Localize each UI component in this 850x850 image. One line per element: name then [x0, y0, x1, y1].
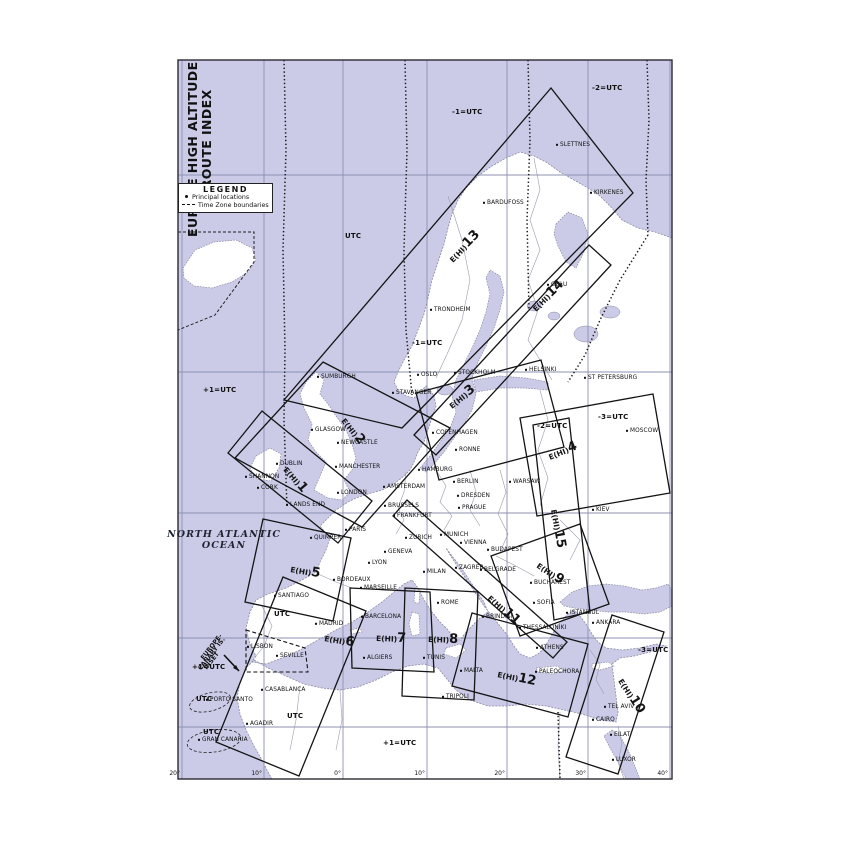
city-label-BRINDISI: BRINDISI — [486, 614, 513, 620]
city-dot-THESSALONIKI — [519, 627, 521, 629]
city-dot-BARCELONA — [361, 616, 363, 618]
city-label-LISBON: LISBON — [251, 644, 273, 650]
city-dot-SUMBURGH — [317, 376, 319, 378]
city-label-SOFIA: SOFIA — [537, 600, 555, 606]
city-label-GLASGOW: GLASGOW — [315, 427, 346, 433]
city-dot-BELGRADE — [480, 569, 482, 571]
city-dot-PRAGUE — [458, 507, 460, 509]
city-dot-BORDEAUX — [333, 579, 335, 581]
city-dot-ST PETERSBURG — [584, 377, 586, 379]
city-label-TEL AVIV: TEL AVIV — [607, 704, 634, 710]
ocean-label-line2: OCEAN — [202, 540, 246, 551]
city-dot-ZURICH — [405, 537, 407, 539]
city-dot-MARSEILLE — [360, 587, 362, 589]
city-dot-ALGIERS — [363, 657, 365, 659]
city-dot-CASABLANCA — [261, 689, 263, 691]
city-dot-SHANNON — [245, 476, 247, 478]
city-label-TRONDHEIM: TRONDHEIM — [433, 307, 471, 313]
city-dot-SLETTNES — [556, 144, 558, 146]
city-dot-MADRID — [315, 623, 317, 625]
utc-zone-label-0: -1=UTC — [452, 108, 482, 116]
lake-1 — [574, 326, 598, 342]
utc-zone-label-1: -2=UTC — [592, 84, 622, 92]
city-label-BORDEAUX: BORDEAUX — [337, 577, 371, 583]
city-label-KIRKENES: KIRKENES — [594, 190, 624, 196]
city-dot-HAMBURG — [418, 469, 420, 471]
city-dot-CAIRO — [592, 719, 594, 721]
longitude-label-6: 40° — [657, 770, 668, 777]
utc-zone-label-3: +1=UTC — [203, 386, 236, 394]
city-label-CORK: CORK — [261, 485, 278, 491]
lake-2 — [600, 306, 620, 318]
city-dot-LYON — [368, 562, 370, 564]
city-dot-LISBON — [247, 646, 249, 648]
time-zone-dashed-line-icon — [182, 204, 195, 205]
city-label-STAVANGER: STAVANGER — [396, 390, 431, 396]
city-dot-KIRKENES — [590, 192, 592, 194]
city-dot-MALTA — [460, 670, 462, 672]
city-label-PARIS: PARIS — [349, 527, 366, 533]
city-label-MADRID: MADRID — [319, 621, 344, 627]
legend-item-principal-locations: Principal locations — [182, 194, 269, 202]
ocean-label-line1: NORTH ATLANTIC — [166, 529, 281, 540]
city-label-OULU: OULU — [551, 282, 567, 288]
longitude-label-1: 10° — [251, 770, 262, 777]
utc-zone-label-7: -3=UTC — [638, 646, 668, 654]
city-label-LUXOR: LUXOR — [616, 757, 636, 763]
island-3 — [414, 588, 420, 604]
city-dot-BUDAPEST — [487, 549, 489, 551]
city-label-HAMBURG: HAMBURG — [422, 467, 453, 473]
city-label-MILAN: MILAN — [427, 569, 446, 575]
city-label-PRAGUE: PRAGUE — [462, 505, 486, 511]
city-label-BRUSSELS: BRUSSELS — [388, 503, 419, 509]
city-label-BARDUFOSS: BARDUFOSS — [487, 200, 524, 206]
city-label-BARCELONA: BARCELONA — [365, 614, 401, 620]
city-dot-SOFIA — [533, 602, 535, 604]
city-label-PALEOCHORA: PALEOCHORA — [539, 669, 579, 675]
city-label-ATHENS: ATHENS — [540, 645, 564, 651]
city-label-ZAGREB: ZAGREB — [459, 565, 484, 571]
legend-item-label: Principal locations — [192, 194, 249, 201]
city-dot-QUIMPER — [310, 537, 312, 539]
city-dot-TUNIS — [423, 657, 425, 659]
city-dot-BUCHAREST — [530, 582, 532, 584]
chart-index-page: { "title":{"line1":"EUROPE HIGH ALTITUDE… — [0, 0, 850, 850]
city-dot-TEL AVIV — [604, 706, 606, 708]
utc-zone-label-11: UTC — [203, 728, 219, 736]
city-dot-OULU — [547, 284, 549, 286]
city-label-ALGIERS: ALGIERS — [367, 655, 393, 661]
city-dot-DRESDEN — [457, 495, 459, 497]
utc-zone-label-4: -1=UTC — [412, 339, 442, 347]
legend: LEGEND Principal locations Time Zone bou… — [178, 183, 273, 213]
city-label-FRANKFURT: FRANKFURT — [397, 513, 432, 519]
city-dot-TRONDHEIM — [430, 309, 432, 311]
city-label-TUNIS: TUNIS — [426, 655, 445, 661]
city-label-DRESDEN: DRESDEN — [461, 493, 490, 499]
city-label-NEWCASTLE: NEWCASTLE — [341, 440, 378, 446]
city-label-VIENNA: VIENNA — [464, 540, 487, 546]
city-dot-COPENHAGEN — [432, 432, 434, 434]
city-label-ST PETERSBURG: ST PETERSBURG — [588, 375, 638, 381]
city-label-COPENHAGEN: COPENHAGEN — [436, 430, 478, 436]
utc-zone-label-8: UTC — [274, 610, 290, 618]
city-label-EILAT: EILAT — [614, 732, 631, 738]
city-dot-NEWCASTLE — [337, 442, 339, 444]
city-dot-ISTANBUL — [566, 612, 568, 614]
city-label-QUIMPER: QUIMPER — [314, 535, 341, 541]
utc-zone-label-13: +1=UTC — [383, 739, 416, 747]
city-dot-GRAN CANARIA — [198, 739, 200, 741]
longitude-label-5: 30° — [575, 770, 586, 777]
city-label-MANCHESTER: MANCHESTER — [339, 464, 380, 470]
city-dot-VIENNA — [460, 542, 462, 544]
city-label-ROME: ROME — [441, 600, 459, 606]
city-dot-MOSCOW — [626, 430, 628, 432]
city-dot-MUNICH — [440, 534, 442, 536]
city-label-BUCHAREST: BUCHAREST — [534, 580, 571, 586]
city-dot-GENEVA — [384, 551, 386, 553]
city-dot-AGADIR — [246, 723, 248, 725]
city-label-WARSAW: WARSAW — [513, 479, 540, 485]
city-dot-AMSTERDAM — [383, 486, 385, 488]
city-label-GENEVA: GENEVA — [388, 549, 412, 555]
city-dot-MANCHESTER — [335, 466, 337, 468]
utc-zone-label-6: -3=UTC — [598, 413, 628, 421]
city-dot-CORK — [257, 487, 259, 489]
city-dot-PALEOCHORA — [535, 671, 537, 673]
city-label-SLETTNES: SLETTNES — [560, 142, 590, 148]
city-dot-ZAGREB — [455, 567, 457, 569]
city-label-THESSALONIKI: THESSALONIKI — [522, 625, 567, 631]
city-dot-DUBLIN — [276, 463, 278, 465]
city-label-STOCKHOLM: STOCKHOLM — [458, 370, 496, 376]
city-label-MOSCOW: MOSCOW — [630, 428, 658, 434]
principal-location-dot-icon — [185, 195, 188, 198]
city-label-LONDON: LONDON — [341, 490, 367, 496]
utc-zone-label-12: UTC — [287, 712, 303, 720]
city-dot-SEVILLE — [276, 655, 278, 657]
city-label-CAIRO: CAIRO — [596, 717, 615, 723]
city-label-LANDS END: LANDS END — [290, 502, 325, 508]
city-label-DUBLIN: DUBLIN — [280, 461, 303, 467]
city-dot-GLASGOW — [311, 429, 313, 431]
map-canvas: 20°10°0°10°20°30°40°E(HI)1E(HI)2E(HI)3E(… — [0, 0, 850, 850]
city-label-BUDAPEST: BUDAPEST — [491, 547, 523, 553]
city-dot-LANDS END — [286, 504, 288, 506]
city-dot-BARDUFOSS — [483, 202, 485, 204]
city-label-AGADIR: AGADIR — [250, 721, 273, 727]
city-label-AMSTERDAM: AMSTERDAM — [387, 484, 425, 490]
longitude-label-4: 20° — [494, 770, 505, 777]
city-label-CASABLANCA: CASABLANCA — [265, 687, 305, 693]
city-label-SANTIAGO: SANTIAGO — [278, 593, 309, 599]
city-label-KIEV: KIEV — [596, 507, 610, 513]
city-dot-ANKARA — [592, 622, 594, 624]
city-label-ANKARA: ANKARA — [596, 620, 620, 626]
city-dot-OSLO — [417, 374, 419, 376]
lake-4 — [548, 312, 560, 320]
city-dot-RONNE — [455, 449, 457, 451]
city-dot-LONDON — [337, 492, 339, 494]
city-dot-PARIS — [345, 529, 347, 531]
city-dot-ATHENS — [536, 647, 538, 649]
city-dot-FRANKFURT — [393, 515, 395, 517]
legend-item-time-zone-boundaries: Time Zone boundaries — [182, 202, 269, 210]
city-label-ISTANBUL: ISTANBUL — [570, 610, 600, 616]
city-dot-HELSINKI — [525, 369, 527, 371]
city-label-BERLIN: BERLIN — [457, 479, 479, 485]
city-label-PORTO SANTO: PORTO SANTO — [210, 697, 253, 703]
city-label-LYON: LYON — [372, 560, 387, 566]
city-dot-BRUSSELS — [384, 505, 386, 507]
city-label-SHANNON: SHANNON — [249, 474, 279, 480]
city-label-MARSEILLE: MARSEILLE — [364, 585, 397, 591]
city-dot-TRIPOLI — [442, 696, 444, 698]
city-label-ZURICH: ZURICH — [409, 535, 432, 541]
city-dot-MILAN — [423, 571, 425, 573]
city-dot-BRINDISI — [482, 616, 484, 618]
city-label-SUMBURGH: SUMBURGH — [321, 374, 356, 380]
city-dot-STOCKHOLM — [454, 372, 456, 374]
city-label-TRIPOLI: TRIPOLI — [445, 694, 469, 700]
city-label-MUNICH: MUNICH — [444, 532, 468, 538]
utc-zone-label-5: -2=UTC — [537, 422, 567, 430]
city-dot-KIEV — [592, 509, 594, 511]
city-dot-LUXOR — [612, 759, 614, 761]
city-label-GRAN CANARIA: GRAN CANARIA — [202, 737, 248, 743]
city-dot-ROME — [437, 602, 439, 604]
city-label-OSLO: OSLO — [421, 372, 438, 378]
city-dot-BERLIN — [453, 481, 455, 483]
city-label-SEVILLE: SEVILLE — [280, 653, 304, 659]
utc-zone-label-10: UTC — [196, 695, 212, 703]
city-dot-SANTIAGO — [274, 595, 276, 597]
city-label-MALTA: MALTA — [464, 668, 483, 674]
city-label-BELGRADE: BELGRADE — [484, 567, 516, 573]
utc-zone-label-2: UTC — [345, 232, 361, 240]
city-dot-EILAT — [610, 734, 612, 736]
longitude-label-3: 10° — [414, 770, 425, 777]
city-label-HELSINKI: HELSINKI — [529, 367, 556, 373]
legend-title: LEGEND — [182, 185, 269, 194]
city-dot-STAVANGER — [392, 392, 394, 394]
legend-item-label: Time Zone boundaries — [198, 202, 269, 209]
longitude-label-2: 0° — [334, 770, 341, 777]
city-dot-WARSAW — [509, 481, 511, 483]
city-label-RONNE: RONNE — [459, 447, 481, 453]
